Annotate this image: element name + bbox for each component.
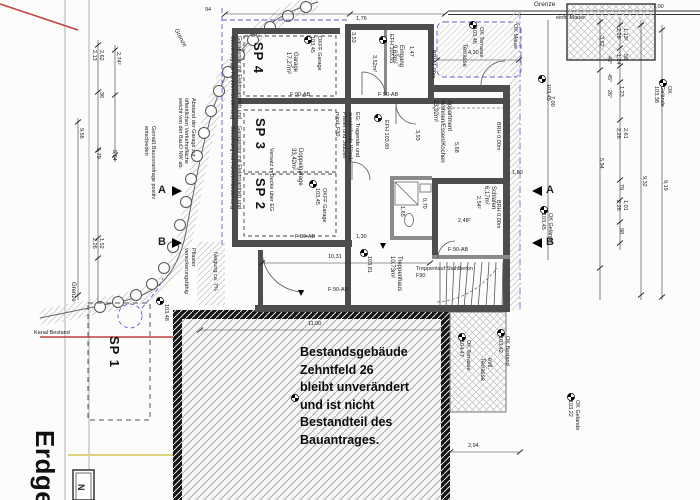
note-approval: Gemäß Bauvoranfrage positiv entschieden: [143, 126, 156, 199]
level-10348: 103,48: [162, 304, 169, 321]
section-a-left: A: [158, 184, 166, 197]
note-paving: Pflaster versickerungsfähig: [183, 248, 196, 294]
level-ok-bestand-342: OK Bestand 103,42: [497, 336, 510, 366]
dim-353: 3,53: [349, 32, 356, 43]
dim-left-2: 2,74²: [114, 52, 121, 65]
dim-left-3: 36: [97, 92, 104, 98]
dim-070: 0,70: [420, 198, 427, 209]
dim-right-3: 1,13² 2,26: [615, 28, 628, 41]
dim-393: 3,93: [413, 130, 420, 141]
note-garage-door-1: Garagentor mit Elektroantrieb und Steuer…: [229, 36, 242, 119]
level-efh-entry: EFH 103,65: [387, 34, 394, 63]
angle-45: 45°: [605, 74, 612, 82]
level-efh-flur: EFH 103,60: [382, 120, 389, 149]
dim-147: 1,47: [407, 46, 414, 57]
dim-130: 1,30: [356, 234, 367, 241]
dim-90: 90: [292, 314, 298, 321]
parking-sp1: SP 1: [106, 336, 122, 368]
level-ok-gelaende-338: OK Gelände 103,38: [652, 86, 672, 114]
section-b-right: B: [546, 236, 554, 249]
dim-right-11: 9,19: [661, 180, 668, 191]
f90-label-2: F 90-AB: [378, 92, 398, 99]
floor-plan-sheet: Erdgeschoss N SP 4 SP 3 SP 2 SP 1 Bestan…: [0, 0, 700, 500]
neighbor-terrace-hatch: [567, 4, 655, 60]
terrace-label: Terrasse: [460, 44, 467, 67]
room-garage: Garage 17,27m²: [284, 52, 298, 74]
kanal-label: Kanal Bestand: [34, 330, 70, 337]
parking-sp3: SP 3: [252, 118, 268, 150]
room-store-area: 3,52m²: [370, 55, 377, 72]
dim-right-5: 1,23: [617, 86, 624, 97]
brh-000-b: BRH 0,00m: [494, 200, 501, 228]
dim-568: 5,68: [452, 142, 459, 153]
grenze-top: Grenze: [534, 1, 555, 9]
f90-label-1: F 90-AB: [290, 92, 310, 99]
dim-right-1: 3,52: [597, 36, 604, 47]
level-okff-garage-2: OKFF Garage 103,45: [314, 188, 327, 223]
floor-title: Erdgeschoss: [29, 430, 60, 500]
note-ramp: Neigung ca. 7%: [211, 252, 218, 291]
optional-terrace-label: evtl. Terrasse: [478, 358, 492, 381]
level-ok-gelaende-322: OK Gelände 103,22: [567, 400, 580, 430]
angle-42: 42°: [605, 56, 612, 64]
section-b-left: B: [158, 236, 166, 249]
dim-left-5: 6,64: [110, 150, 117, 161]
dim-700-right: 7,00: [548, 96, 555, 107]
f90-label-3: F 90-AB: [295, 234, 315, 241]
dim-right-10: 9,32: [640, 176, 647, 187]
ok-mauer-label: OK Mauer: [511, 24, 518, 49]
brh-000-a: BRH 0,00m: [494, 122, 501, 150]
note-garage-distance: Abstand der Garage zur öffentlichen Verk…: [176, 98, 196, 169]
dim-294: 2,94: [468, 443, 479, 450]
room-doppelgarage: Doppelgarage 33,42m²: [289, 148, 303, 186]
room-apartment: Appartment Wohnen/Essen/Kochen 23,92m²: [430, 100, 452, 163]
angle-26: 26°: [605, 90, 612, 98]
section-a-right: A: [546, 184, 554, 197]
dim-left-1: 2,62 2,13: [91, 50, 104, 61]
dim-180: 1,80: [512, 170, 523, 177]
note-garage-door-2: Garagentor mit Elektroantrieb und Steuer…: [229, 126, 242, 209]
dim-left-6: 9,56: [77, 128, 84, 139]
bestand-note: Bestandsgebäude Zehntfeld 26 bleibt unve…: [300, 344, 450, 449]
dim-176: 1,76: [356, 16, 367, 23]
f90-label-4: F 90-AB: [448, 247, 468, 254]
note-walls-f30: EG: Tragende und aussteifende Wände, Pfe…: [334, 112, 360, 164]
dim-right-2: 5,94: [597, 158, 604, 169]
mauer-label: einfr. Mauer: [556, 15, 585, 22]
dim-left-7: 1,52 2,26: [91, 238, 104, 249]
dim-430: 4,30: [468, 50, 479, 57]
parking-sp4: SP 4: [250, 42, 266, 74]
dim-254: 2,54²: [474, 196, 481, 209]
dim-right-6: 2,61 2,26: [615, 128, 628, 139]
dim-1031: 10,31: [328, 254, 342, 261]
dim-94: 94: [205, 7, 211, 14]
dim-right-9: 98: [617, 228, 624, 234]
doppelgarage-note: Versatz in Decke über EG: [267, 148, 274, 211]
f90-label-5: F 90-AB: [328, 287, 348, 294]
red-boundary-line: [0, 4, 78, 30]
north-label: N: [75, 484, 86, 491]
stair-note: Treppenlauf Stahlbeton F90: [416, 266, 473, 279]
dim-165: 1,65: [398, 206, 405, 217]
dim-1100: 11,00: [308, 321, 321, 328]
parking-sp2: SP 2: [252, 178, 268, 210]
level-okff-garage-1: OKFF Garage 103,45: [309, 36, 322, 71]
level-ok-terrasse-447: OK Terrasse 104,47: [458, 340, 471, 370]
dim-right-7: 79: [617, 184, 624, 190]
dim-248: 2,48²: [458, 218, 471, 225]
dim-left-4: 5,79: [94, 148, 101, 159]
dim-700-top: 7,00: [653, 4, 664, 11]
level-10381: 103,81: [365, 256, 372, 273]
brh-100: BRH 1,00m: [429, 50, 436, 78]
grenze-left: Grenze: [69, 282, 76, 302]
dim-right-8: 1,01 2,26: [615, 200, 628, 211]
room-stairhall: Treppenhaus 10,73m²: [388, 256, 402, 291]
dim-right-4: 56 1,24: [615, 54, 628, 65]
